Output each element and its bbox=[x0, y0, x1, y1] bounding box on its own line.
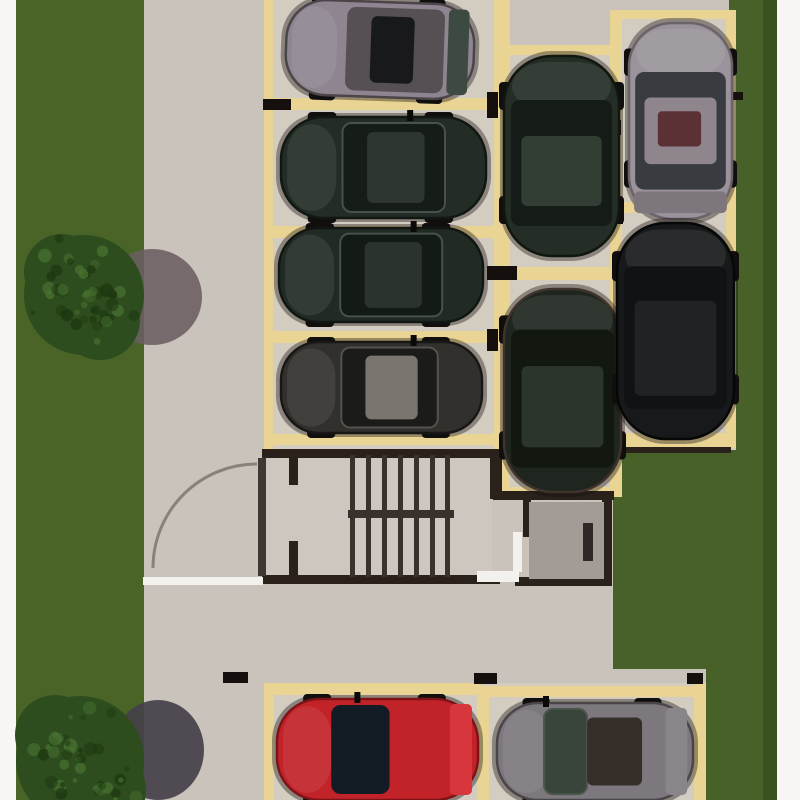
tree-foliage-speckle bbox=[128, 310, 139, 321]
car-silver-top-right bbox=[624, 18, 737, 224]
margin-right bbox=[777, 0, 800, 800]
stair-rail bbox=[348, 510, 454, 518]
tree-foliage-speckle bbox=[60, 782, 66, 788]
curb-stair-south bbox=[477, 571, 519, 582]
stall-line-r1-top bbox=[610, 10, 736, 19]
tree-foliage-speckle bbox=[62, 749, 72, 759]
car-antenna bbox=[407, 110, 413, 121]
tree-foliage-speckle bbox=[100, 283, 114, 297]
suv-dark-lower bbox=[499, 284, 626, 497]
wheel-stop bbox=[687, 673, 703, 684]
tree-foliage-speckle bbox=[67, 258, 74, 265]
tree-foliage-speckle bbox=[77, 753, 87, 763]
curb-aisle bbox=[143, 577, 263, 585]
tree-foliage-speckle bbox=[97, 246, 108, 257]
tree-foliage-speckle bbox=[106, 708, 116, 718]
car-hood-highlight bbox=[283, 706, 331, 793]
tree-foliage-speckle bbox=[106, 298, 119, 311]
car-hood-highlight bbox=[290, 6, 338, 89]
tree-foliage-speckle bbox=[64, 740, 70, 746]
wheel-stop bbox=[474, 673, 497, 684]
car-gray-bottom bbox=[492, 696, 698, 800]
car-roof bbox=[587, 718, 642, 786]
wheel-stop bbox=[487, 266, 517, 280]
parking-site-plan bbox=[0, 0, 800, 800]
car-hood-highlight bbox=[636, 29, 725, 76]
car-red-bottom bbox=[272, 692, 483, 800]
tree-foliage-speckle bbox=[99, 782, 107, 790]
car-rear bbox=[446, 9, 470, 95]
car-rear bbox=[450, 704, 472, 795]
tree-foliage-speckle bbox=[101, 316, 112, 327]
tree-foliage-speckle bbox=[61, 309, 73, 321]
tree-foliage-speckle bbox=[68, 715, 73, 720]
car-hood-highlight bbox=[287, 348, 335, 426]
lawn-right-block bbox=[613, 450, 777, 669]
door-jamb-bottom bbox=[289, 541, 298, 584]
lawn-left bbox=[16, 0, 144, 800]
tree-foliage-speckle bbox=[87, 265, 96, 274]
car-roof bbox=[367, 132, 424, 203]
tree-foliage-speckle bbox=[56, 788, 68, 800]
tree-foliage-speckle bbox=[31, 310, 36, 315]
car-roof bbox=[522, 366, 604, 447]
tree-foliage-speckle bbox=[38, 249, 52, 263]
lawn-edge-line bbox=[617, 447, 731, 453]
car-antenna bbox=[411, 335, 417, 346]
tree-foliage-speckle bbox=[80, 715, 85, 720]
tree-foliage-speckle bbox=[80, 315, 89, 324]
suv-dark-upper bbox=[499, 51, 624, 261]
tree-foliage-speckle bbox=[83, 290, 90, 297]
tree-foliage-speckle bbox=[59, 760, 69, 770]
car-roof bbox=[365, 356, 417, 420]
tree-foliage-speckle bbox=[45, 776, 58, 789]
tree-foliage-speckle bbox=[75, 265, 85, 275]
car-hood-highlight bbox=[285, 235, 334, 316]
tree-foliage-speckle bbox=[75, 763, 86, 774]
car-roof bbox=[635, 301, 717, 396]
car-dark-row2 bbox=[274, 221, 488, 327]
curb-room-west bbox=[513, 532, 522, 572]
car-gray-top-left bbox=[279, 0, 481, 105]
tree-foliage-speckle bbox=[55, 234, 64, 243]
tree-foliage-speckle bbox=[78, 748, 83, 753]
tree-foliage-speckle bbox=[111, 788, 121, 798]
car-dark-row3 bbox=[276, 335, 487, 438]
tree-foliage-speckle bbox=[84, 742, 98, 756]
door-jamb-top bbox=[289, 455, 298, 485]
stall-line-red-top bbox=[264, 683, 481, 695]
tree-foliage-speckle bbox=[124, 766, 130, 772]
car-antenna bbox=[543, 696, 549, 707]
car-roof bbox=[369, 16, 415, 84]
tree-foliage-speckle bbox=[81, 302, 88, 309]
stall-line-gray-top bbox=[480, 686, 705, 697]
tree-foliage-speckle bbox=[94, 338, 101, 345]
car-antenna bbox=[354, 692, 360, 703]
wheel-stop bbox=[487, 92, 498, 118]
tree-foliage-speckle bbox=[83, 701, 96, 714]
car-roof bbox=[521, 136, 602, 206]
site-plan-svg bbox=[0, 0, 800, 800]
wheel-stop bbox=[487, 329, 498, 351]
tree-foliage-speckle bbox=[74, 310, 80, 316]
car-glass bbox=[331, 705, 389, 794]
wheel-stop bbox=[263, 99, 291, 110]
tree-foliage-speckle bbox=[47, 746, 59, 758]
suv-black-right bbox=[612, 218, 739, 444]
car-dark-row1 bbox=[276, 110, 491, 223]
car-hood-highlight bbox=[503, 710, 550, 793]
lawn-right-dark-edge bbox=[763, 0, 777, 800]
car-hood-highlight bbox=[287, 124, 336, 211]
tree-foliage-speckle bbox=[57, 284, 68, 295]
wheel-stop bbox=[223, 672, 248, 683]
car-antenna bbox=[411, 221, 417, 232]
tree-foliage-speckle bbox=[50, 265, 62, 277]
tree-foliage-speckle bbox=[49, 732, 62, 745]
car-sunroof-interior bbox=[658, 111, 701, 146]
car-rear bbox=[666, 708, 688, 795]
car-glass bbox=[544, 709, 587, 794]
room-door-marker bbox=[583, 523, 593, 561]
door-leaf bbox=[258, 458, 266, 576]
tree-foliage-speckle bbox=[73, 778, 78, 783]
margin-left bbox=[0, 0, 16, 800]
car-roof bbox=[365, 242, 422, 308]
car-rear bbox=[634, 192, 727, 214]
tree-foliage-speckle bbox=[118, 777, 123, 782]
tree-foliage-speckle bbox=[90, 308, 95, 313]
